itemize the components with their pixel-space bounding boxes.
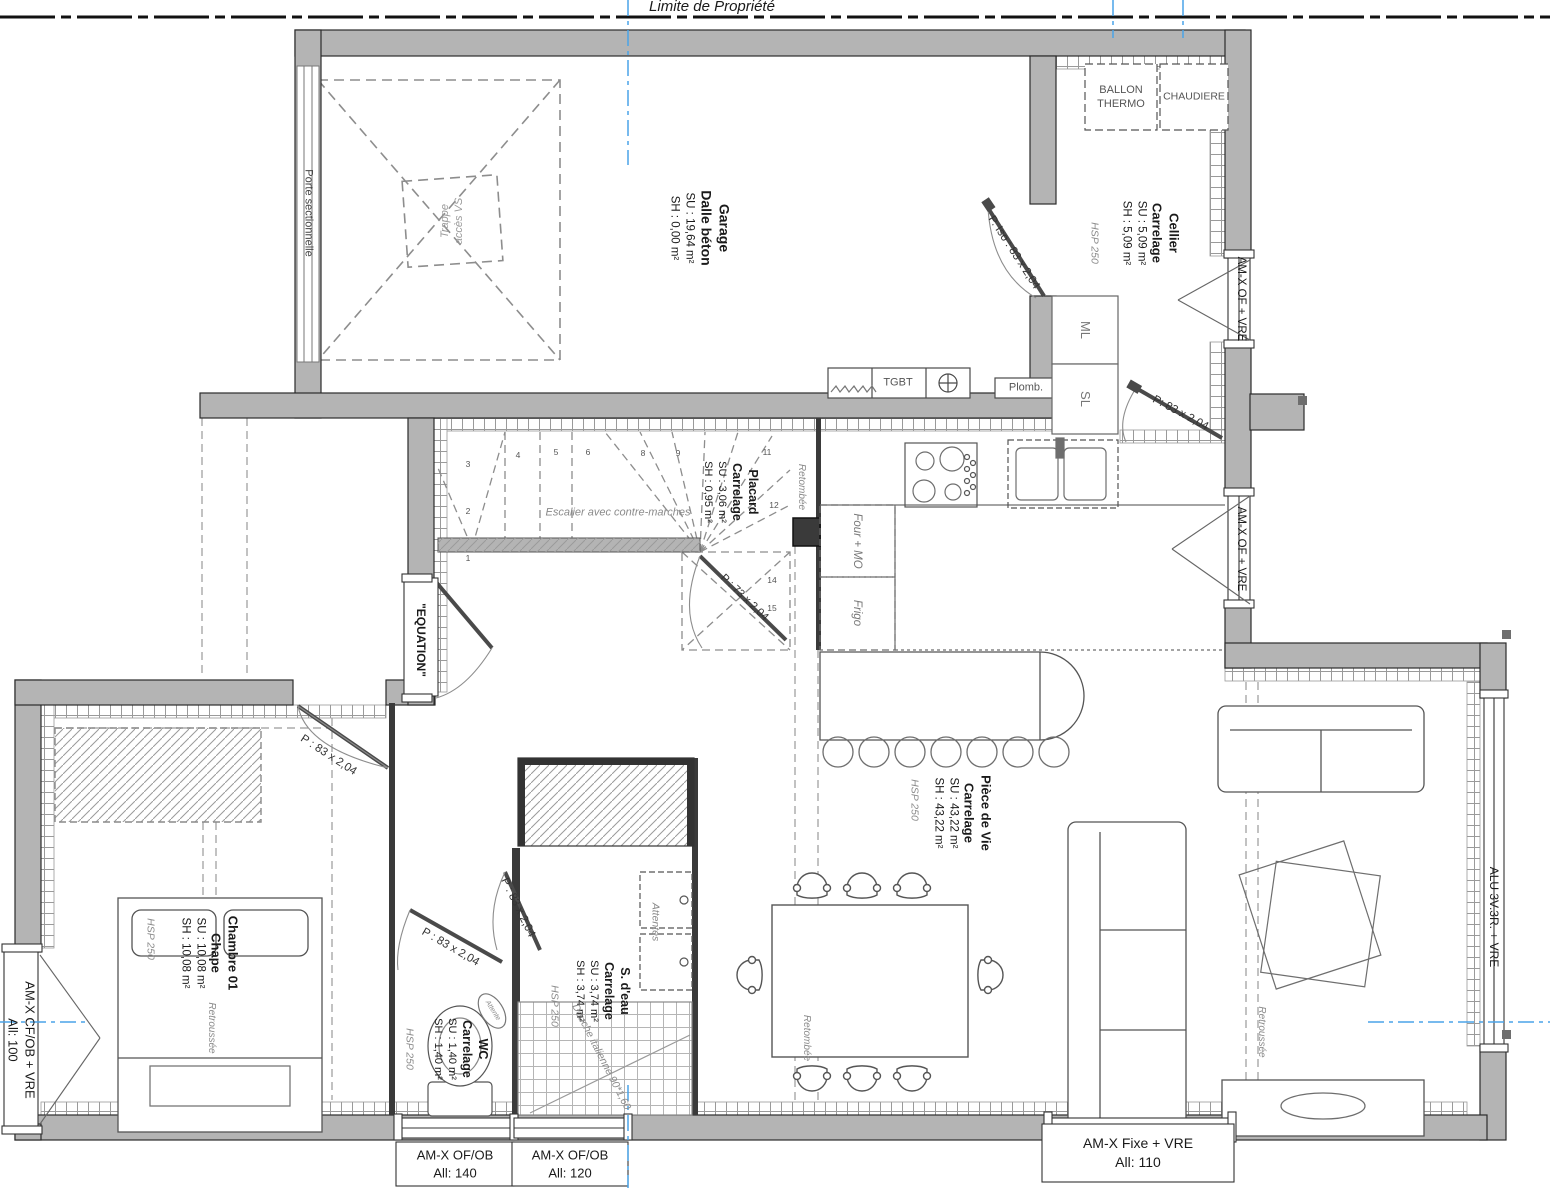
retroussee-chambre: Retroussée bbox=[205, 1002, 217, 1053]
room-floor: Dalle béton bbox=[697, 190, 715, 265]
window-type: AM-X Fixe + VRE bbox=[1083, 1134, 1193, 1153]
escalier-note: Escalier avec contre-marches bbox=[546, 506, 691, 519]
stair-step-number: 14 bbox=[767, 575, 776, 585]
stair-step-number: 11 bbox=[763, 447, 772, 457]
window-allege: All: 110 bbox=[1115, 1153, 1161, 1172]
frigo-label: Frigo bbox=[849, 600, 863, 626]
room-floor: Carrelage bbox=[960, 783, 977, 843]
stair-step-number: 3 bbox=[466, 459, 471, 469]
room-su: SU : 3,06 m² bbox=[715, 461, 729, 523]
room-su: SU : 19,64 m² bbox=[682, 193, 697, 264]
stair-step-number: 2 bbox=[466, 506, 471, 516]
window-label-right-of-2: AM-X OF + VRE bbox=[1233, 507, 1247, 592]
plomb-label: Plomb. bbox=[1009, 381, 1043, 394]
room-floor: Carrelage bbox=[1148, 203, 1165, 263]
room-name: Cellier bbox=[1165, 213, 1182, 253]
stair-step-number: 5 bbox=[554, 447, 559, 457]
tv-unit bbox=[1222, 1080, 1424, 1136]
hsp-wc: HSP 250 bbox=[403, 1028, 416, 1070]
tgbt-label: TGBT bbox=[883, 376, 912, 389]
room-label-chambre: Chambre 01 Chape SU : 10,08 m² SH : 10,0… bbox=[178, 916, 241, 990]
four-mo-label: Four + MO bbox=[849, 513, 863, 568]
window-type: AM-X OF/OB bbox=[532, 1146, 609, 1164]
window-label-120: AM-X OF/OB All: 120 bbox=[532, 1146, 609, 1181]
room-label-piece-de-vie: Pièce de Vie Carrelage SU : 43,22 m² SH … bbox=[931, 775, 994, 851]
room-su: SU : 3,74 m² bbox=[587, 960, 601, 1022]
window-label-140: AM-X OF/OB All: 140 bbox=[417, 1146, 494, 1181]
stair-step-number: 6 bbox=[586, 447, 591, 457]
hsp-chambre: HSP 250 bbox=[144, 918, 157, 960]
ballon-thermo-label: BALLON THERMO bbox=[1097, 83, 1145, 111]
wardrobe bbox=[55, 728, 261, 822]
room-name: Garage bbox=[715, 204, 733, 252]
window-label-right-of-1: AM-X OF + VRE bbox=[1233, 257, 1247, 342]
retombee-living: Retombée bbox=[800, 1015, 812, 1061]
trappe-line2: accès VS bbox=[452, 198, 466, 244]
stair-step-number: 4 bbox=[516, 450, 521, 460]
room-su: SU : 5,09 m² bbox=[1133, 201, 1148, 266]
window-type: AM-X CF/OB + VRE bbox=[21, 981, 38, 1098]
room-name: S. d'eau bbox=[617, 967, 633, 1014]
room-label-wc: WC Carrelage SU : 1,40 m² SH : 1,40 m² bbox=[431, 1018, 491, 1080]
hsp-cellier: HSP 250 bbox=[1088, 222, 1101, 264]
room-name: Placard bbox=[745, 469, 761, 514]
stair-step-number: 9 bbox=[676, 448, 681, 458]
window-allege: All: 100 bbox=[4, 1018, 21, 1061]
room-floor: Carrelage bbox=[729, 463, 745, 521]
ballon-line1: BALLON bbox=[1099, 83, 1142, 97]
room-sh: SH : 43,22 m² bbox=[931, 778, 946, 849]
chaudiere-label: CHAUDIERE bbox=[1163, 91, 1225, 104]
trappe-label: Trappe accès VS bbox=[438, 198, 466, 244]
room-name: WC bbox=[475, 1039, 491, 1060]
stair-step-number: 12 bbox=[769, 500, 778, 510]
stair-step-number: 8 bbox=[641, 448, 646, 458]
hsp-piece-de-vie: HSP 250 bbox=[908, 779, 921, 821]
room-floor: Carrelage bbox=[601, 962, 617, 1020]
sofa-small bbox=[1218, 706, 1424, 792]
room-floor: Carrelage bbox=[459, 1020, 475, 1078]
room-name: Chambre 01 bbox=[224, 916, 241, 990]
room-floor: Chape bbox=[207, 933, 224, 973]
room-su: SU : 1,40 m² bbox=[445, 1018, 459, 1080]
sl-label: SL bbox=[1077, 391, 1093, 407]
window-allege: All: 120 bbox=[548, 1164, 591, 1182]
retroussee-living: Retroussée bbox=[1255, 1006, 1267, 1057]
floorplan-graphics bbox=[0, 0, 1550, 1188]
window-label-fixe: AM-X Fixe + VRE All: 110 bbox=[1083, 1134, 1193, 1172]
sofa-large bbox=[1068, 822, 1186, 1134]
room-su: SU : 10,08 m² bbox=[192, 918, 207, 989]
bath-closet bbox=[518, 758, 694, 846]
window-allege: All: 140 bbox=[433, 1164, 476, 1182]
attentes-label: Attentes bbox=[649, 903, 662, 942]
property-limit-label: Limite de Propriété bbox=[649, 0, 775, 16]
hsp-sdeau: HSP 250 bbox=[548, 985, 561, 1027]
porte-sectionnelle-label: Porte sectionnelle bbox=[301, 169, 314, 256]
room-label-garage: Garage Dalle béton SU : 19,64 m² SH : 0,… bbox=[667, 190, 732, 265]
stair-step-number: 15 bbox=[767, 603, 776, 613]
trappe-line1: Trappe bbox=[438, 204, 452, 238]
floor-plan: Limite de Propriété Garage Dalle béton S… bbox=[0, 0, 1550, 1188]
ml-label: ML bbox=[1077, 321, 1093, 339]
room-sh: SH : 5,09 m² bbox=[1119, 201, 1134, 266]
room-name: Pièce de Vie bbox=[977, 775, 994, 851]
ballon-line2: THERMO bbox=[1097, 97, 1145, 111]
window-label-left: AM-X CF/OB + VRE All: 100 bbox=[4, 981, 37, 1098]
room-sh: SH : 10,08 m² bbox=[178, 918, 193, 989]
room-sh: SH : 0,95 m² bbox=[701, 461, 715, 523]
room-sh: SH : 0,00 m² bbox=[667, 196, 682, 261]
stair-step-number: 1 bbox=[466, 553, 471, 563]
window-type: AM-X OF/OB bbox=[417, 1146, 494, 1164]
room-sh: SH : 1,40 m² bbox=[431, 1018, 445, 1080]
equation-label: "EQUATION" bbox=[414, 603, 428, 677]
room-label-cellier: Cellier Carrelage SU : 5,09 m² SH : 5,09… bbox=[1119, 201, 1182, 266]
window-label-alu: ALU 3V.3R. + VRE bbox=[1487, 867, 1501, 968]
room-label-placard: Placard Carrelage SU : 3,06 m² SH : 0,95… bbox=[701, 461, 761, 523]
retombee-hall: Retombée bbox=[795, 464, 807, 510]
room-su: SU : 43,22 m² bbox=[945, 778, 960, 849]
